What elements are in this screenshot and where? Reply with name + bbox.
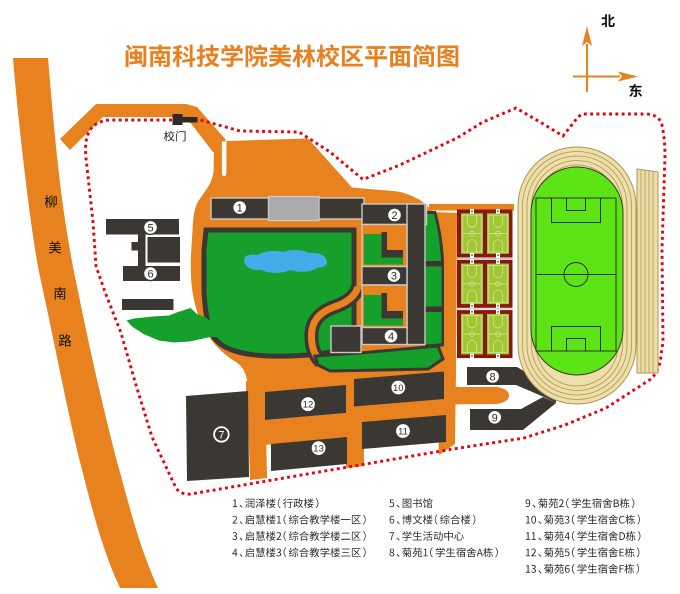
svg-text:2: 2 <box>391 210 397 222</box>
svg-text:9: 9 <box>492 412 498 424</box>
svg-text:6: 6 <box>147 269 153 281</box>
svg-text:1: 1 <box>237 203 243 215</box>
svg-text:5: 5 <box>147 222 153 234</box>
svg-text:11: 11 <box>398 427 408 438</box>
svg-text:13: 13 <box>313 444 324 455</box>
svg-text:3: 3 <box>391 271 397 283</box>
svg-text:7: 7 <box>218 429 224 441</box>
svg-text:4: 4 <box>388 331 394 343</box>
svg-text:12: 12 <box>303 400 314 411</box>
svg-text:8: 8 <box>490 372 496 384</box>
svg-text:10: 10 <box>393 383 404 394</box>
